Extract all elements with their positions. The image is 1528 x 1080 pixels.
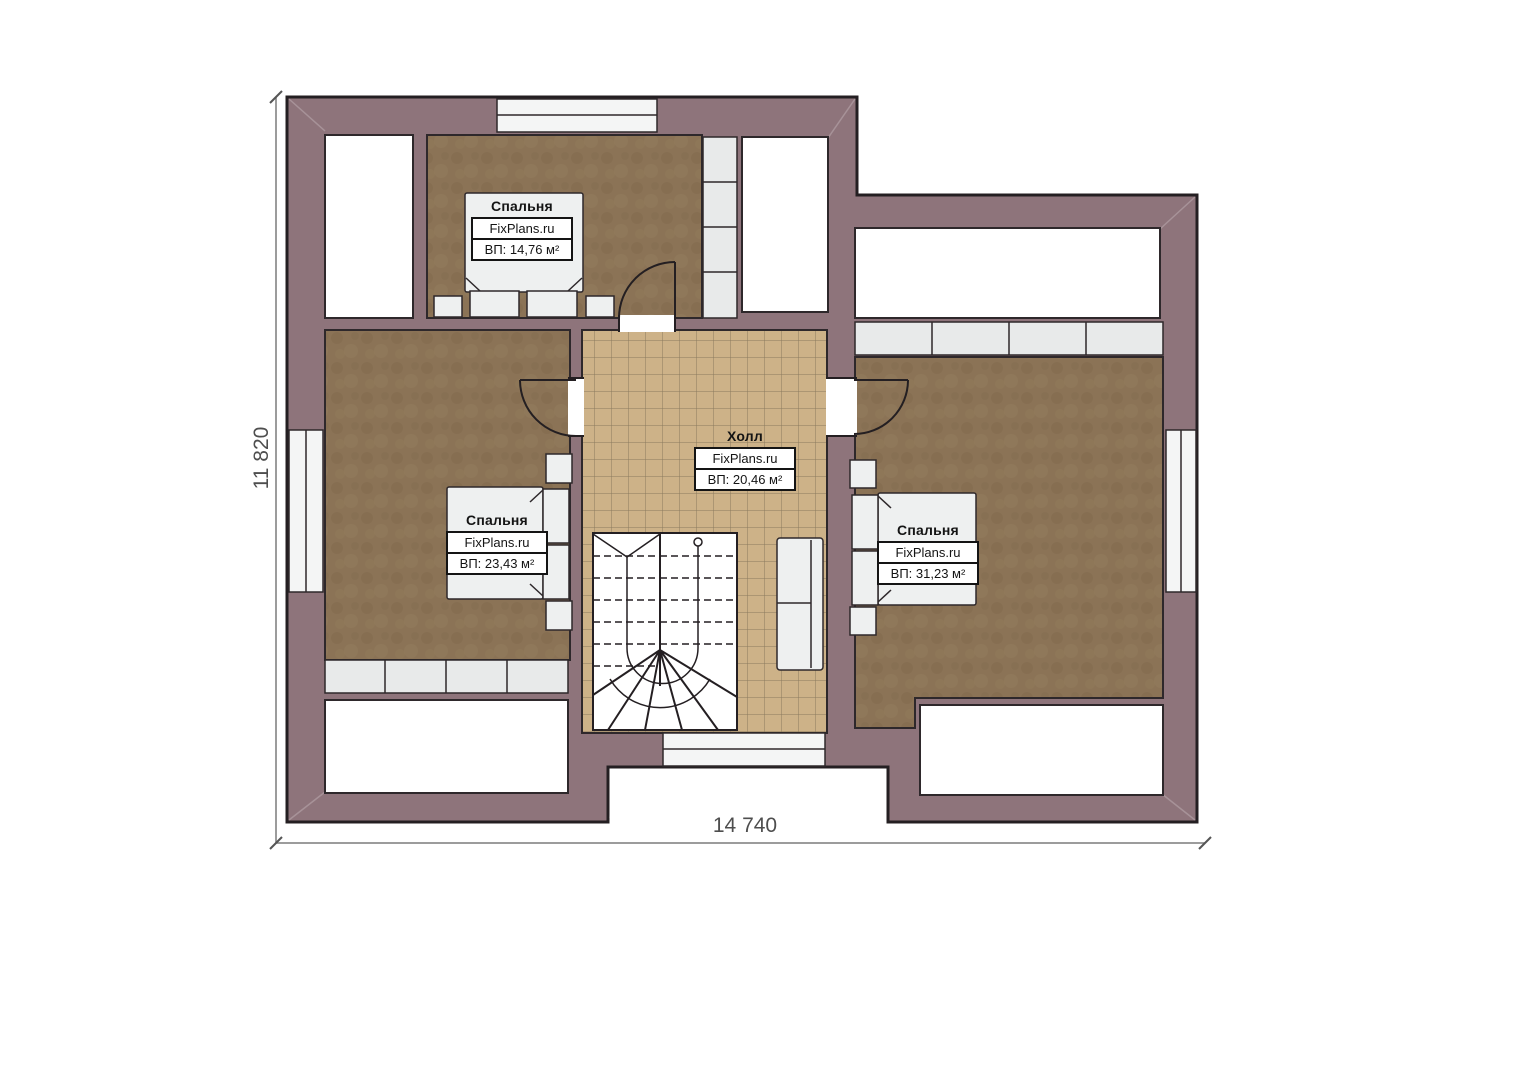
room-info-box: FixPlans.ru ВП: 23,43 м² — [446, 531, 548, 575]
sofa-hall — [777, 538, 823, 670]
room-area: ВП: 20,46 м² — [696, 470, 794, 489]
roof-space-bottom-left — [325, 700, 568, 793]
roof-space-bottom-right — [920, 705, 1163, 795]
closet-top — [703, 137, 737, 318]
room-label-bedroom-top: Спальня FixPlans.ru ВП: 14,76 м² — [471, 198, 573, 261]
floor-plan-drawing — [0, 0, 1528, 1080]
window-bottom — [663, 733, 825, 766]
room-area: ВП: 31,23 м² — [879, 564, 977, 583]
roof-space-top-right — [742, 137, 828, 312]
window-left — [289, 430, 323, 592]
room-source: FixPlans.ru — [473, 219, 571, 240]
closet-left — [325, 660, 568, 693]
room-source: FixPlans.ru — [448, 533, 546, 554]
stairs — [593, 533, 737, 730]
roof-space-top-left — [325, 135, 413, 318]
dimension-height-label: 11 820 — [250, 418, 274, 498]
roof-space-right-top — [855, 228, 1160, 318]
room-label-hall: Холл FixPlans.ru ВП: 20,46 м² — [694, 428, 796, 491]
room-area: ВП: 23,43 м² — [448, 554, 546, 573]
closet-right — [855, 322, 1163, 355]
room-info-box: FixPlans.ru ВП: 31,23 м² — [877, 541, 979, 585]
room-source: FixPlans.ru — [696, 449, 794, 470]
room-label-bedroom-right: Спальня FixPlans.ru ВП: 31,23 м² — [877, 522, 979, 585]
room-info-box: FixPlans.ru ВП: 20,46 м² — [694, 447, 796, 491]
room-name: Холл — [694, 428, 796, 444]
room-name: Спальня — [471, 198, 573, 214]
room-source: FixPlans.ru — [879, 543, 977, 564]
window-right — [1166, 430, 1196, 592]
room-name: Спальня — [446, 512, 548, 528]
room-area: ВП: 14,76 м² — [473, 240, 571, 259]
floor-plan-page: Спальня FixPlans.ru ВП: 14,76 м² Спальня… — [0, 0, 1528, 1080]
room-name: Спальня — [877, 522, 979, 538]
room-info-box: FixPlans.ru ВП: 14,76 м² — [471, 217, 573, 261]
dimension-width-label: 14 740 — [700, 814, 790, 838]
window-top — [497, 99, 657, 132]
room-label-bedroom-left: Спальня FixPlans.ru ВП: 23,43 м² — [446, 512, 548, 575]
